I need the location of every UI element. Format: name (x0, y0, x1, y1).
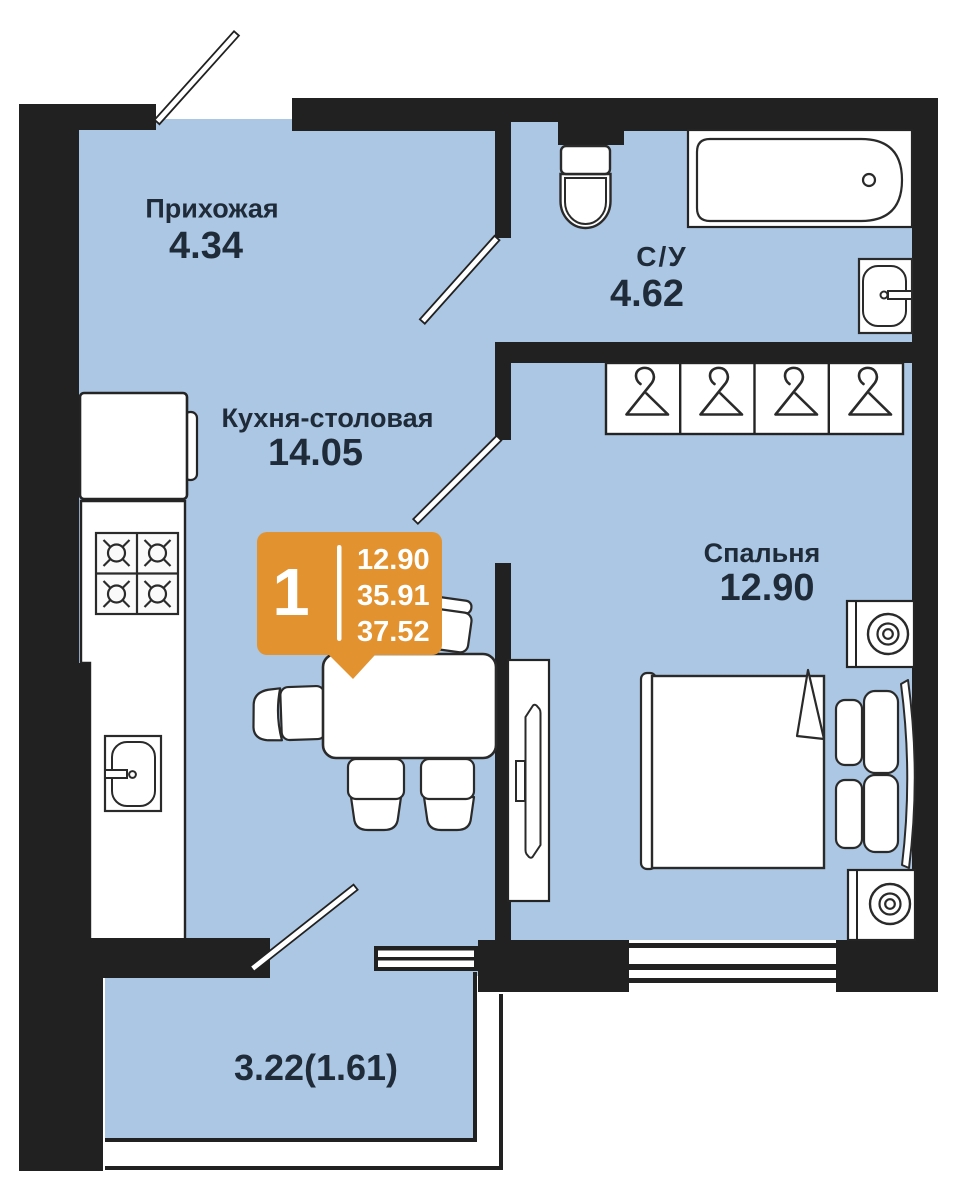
svg-text:Прихожая: Прихожая (145, 194, 278, 224)
svg-text:14.05: 14.05 (268, 432, 363, 474)
svg-text:12.90: 12.90 (719, 567, 814, 609)
svg-text:Кухня-столовая: Кухня-столовая (222, 403, 434, 433)
svg-text:1: 1 (272, 555, 309, 630)
svg-text:37.52: 37.52 (357, 616, 430, 648)
svg-text:С/У: С/У (636, 241, 687, 272)
svg-text:4.62: 4.62 (610, 273, 684, 315)
svg-text:12.90: 12.90 (357, 544, 430, 576)
svg-text:4.34: 4.34 (169, 225, 243, 267)
svg-text:35.91: 35.91 (357, 580, 430, 612)
svg-text:3.22(1.61): 3.22(1.61) (234, 1047, 398, 1088)
svg-text:Спальня: Спальня (704, 538, 821, 568)
